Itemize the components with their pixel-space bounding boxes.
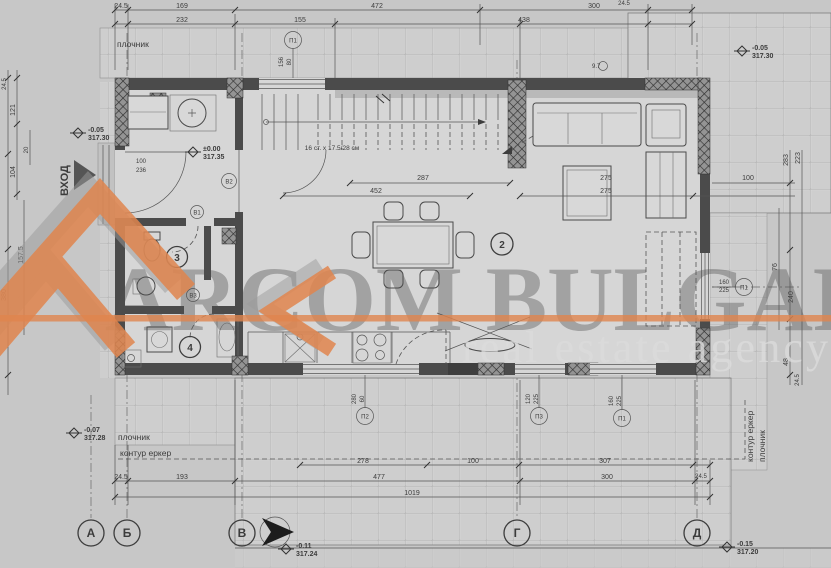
dim-label: 100 (742, 175, 754, 182)
dim-label: 193 (176, 474, 188, 481)
dim-label: 24.5 (695, 474, 707, 480)
window-marker: П1 (289, 39, 297, 45)
dim-label: 283 (783, 154, 790, 166)
dim-label: 121 (10, 104, 17, 116)
elevation-absolute: 317.30 (752, 53, 774, 60)
dim-label: 24.5 (618, 1, 630, 7)
entrance-label: ВХОД (59, 165, 71, 196)
dim-label: 232 (176, 17, 188, 24)
elevation-absolute: 317.24 (296, 551, 318, 558)
pavement-label-bottom: плочник (118, 432, 150, 442)
bay-contour-label-right: контур еркер (745, 411, 755, 462)
dim-label: 100 (136, 159, 147, 165)
dim-label: 278 (357, 458, 369, 465)
axis-bubble-g: Г (514, 526, 521, 540)
window-size: 156 (279, 56, 285, 67)
floor-plan-screenshot: 16 ст. х 17.5/28 см (0, 0, 831, 568)
axis-bubble-a: А (87, 526, 96, 540)
dim-label: 452 (370, 188, 382, 195)
dim-label: 24.5 (2, 78, 8, 90)
window-size: 80 (287, 58, 293, 65)
stair-label: 16 ст. х 17.5/28 см (305, 145, 360, 152)
elevation-relative: -0.11 (296, 543, 312, 550)
watermark-accent-line (0, 315, 831, 322)
dim-label: 20 (24, 146, 30, 153)
pavement-label-top: плочник (117, 39, 149, 49)
dim-label: 24.5 (114, 474, 128, 481)
window-size: 60 (360, 395, 366, 402)
elevation-top-left: -0.05 317.30 (70, 127, 110, 142)
dim-label: 307 (599, 458, 611, 465)
door-marker: В1 (193, 211, 201, 217)
elevation-relative: -0.07 (84, 427, 100, 434)
pavement-label-right: плочник (757, 430, 767, 462)
elevation-absolute: 317.20 (737, 549, 759, 556)
bay-contour-label-bottom: контур еркер (120, 448, 171, 458)
window-marker: П3 (535, 415, 543, 421)
dim-label: 275 (600, 175, 612, 182)
dim-label: 169 (176, 3, 188, 10)
dim-label: 438 (518, 17, 530, 24)
armchair (646, 104, 686, 146)
closet (128, 96, 168, 129)
dim-label: 1019 (404, 490, 420, 497)
elevation-relative: ±0.00 (203, 146, 221, 153)
window-size: 120 (526, 393, 532, 404)
elevation-absolute: 317.35 (203, 154, 225, 161)
dim-label: 477 (373, 474, 385, 481)
watermark-tagline: real estate agency (462, 323, 828, 372)
window-size: 160 (609, 395, 615, 406)
elevation-absolute: 317.30 (88, 135, 110, 142)
elevation-relative: -0.05 (88, 127, 104, 134)
window-size: 225 (534, 393, 540, 404)
door-marker: В2 (225, 180, 233, 186)
tv-cabinet (646, 152, 686, 218)
dim-label: 104 (10, 166, 17, 178)
dim-label: 24.5 (114, 3, 128, 10)
dim-label: 300 (588, 3, 600, 10)
axis-bubble-b: Б (123, 526, 132, 540)
dim-label: 24.5 (795, 374, 801, 386)
elevation-relative: -0.15 (737, 541, 753, 548)
elevation-bottom-left: -0.07 317.28 (66, 427, 106, 442)
dim-label: 300 (601, 474, 613, 481)
window-size: 280 (352, 393, 358, 404)
window-marker: П1 (618, 417, 626, 423)
dim-label: 223 (795, 152, 802, 164)
dim-label: 287 (417, 175, 429, 182)
sofa (533, 103, 641, 146)
elevation-absolute: 317.28 (84, 435, 106, 442)
dim-label: 236 (136, 168, 147, 174)
dim-label: 472 (371, 3, 383, 10)
dim-label: 155 (294, 17, 306, 24)
dim-label: 100 (467, 458, 479, 465)
elevation-relative: -0.05 (752, 45, 768, 52)
window-marker: П2 (361, 415, 369, 421)
window-size: 225 (617, 395, 623, 406)
floor-plan-drawing: 16 ст. х 17.5/28 см (0, 0, 831, 568)
axis-bubble-v: В (238, 526, 247, 540)
dim-label: 275 (600, 188, 612, 195)
axis-bubble-d: Д (693, 526, 702, 540)
